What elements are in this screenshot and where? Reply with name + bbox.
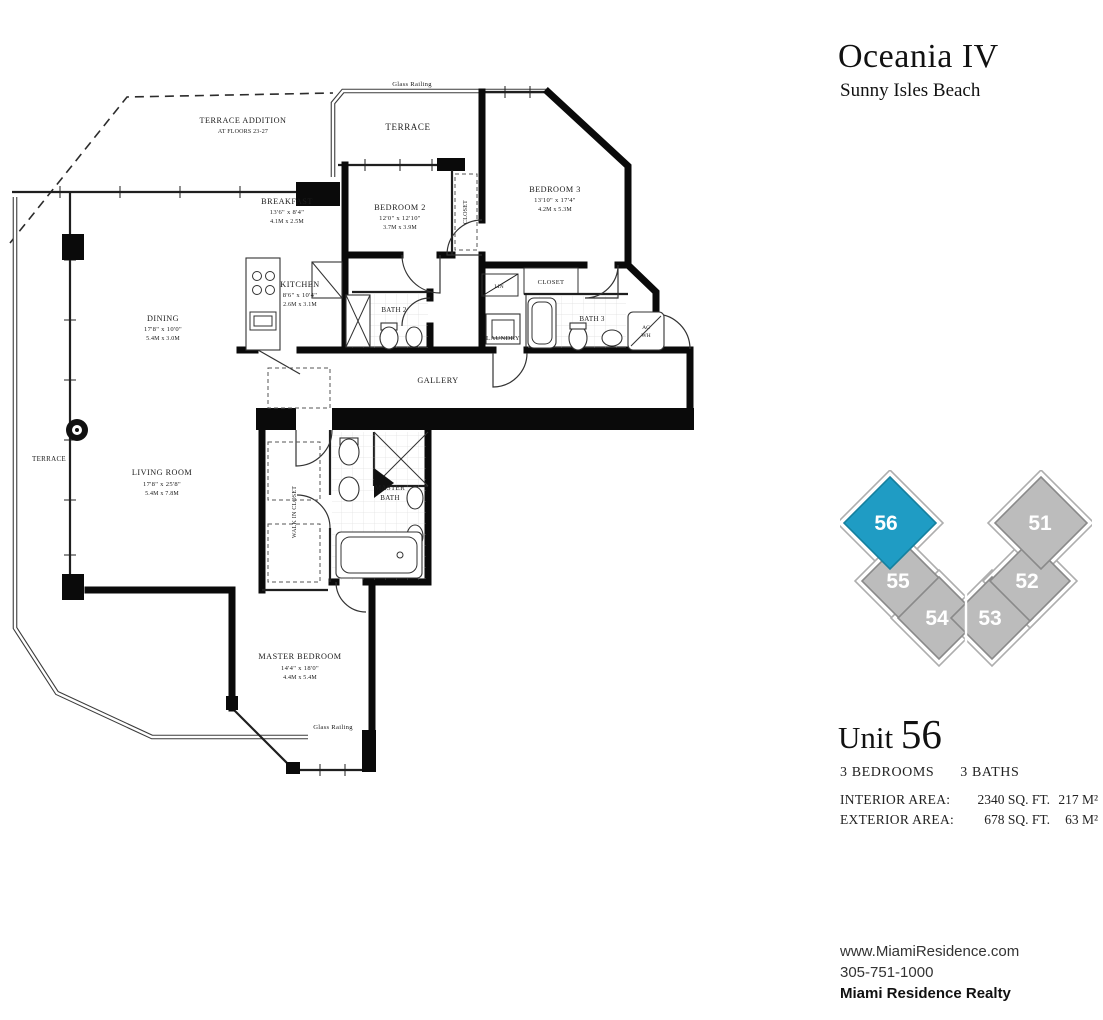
baths-count: 3 BATHS (960, 765, 1019, 780)
bedroom2-label: BEDROOM 2 12'0" x 12'10" 3.7M x 3.9M (374, 203, 426, 231)
svg-text:13'10" x 17'4": 13'10" x 17'4" (534, 197, 576, 204)
unit-word: Unit (838, 720, 901, 755)
svg-text:BEDROOM 2: BEDROOM 2 (374, 203, 426, 212)
svg-text:17'8" x 25'8": 17'8" x 25'8" (143, 481, 181, 488)
svg-text:KITCHEN: KITCHEN (280, 280, 319, 289)
svg-text:13'6" x 8'4": 13'6" x 8'4" (270, 209, 304, 216)
corner-block (437, 158, 465, 171)
svg-text:DINING: DINING (147, 314, 179, 323)
bath3-label: BATH 3 (579, 315, 605, 323)
terrace-addition-floors: AT FLOORS 23-27 (218, 129, 268, 135)
svg-text:WH: WH (641, 333, 650, 339)
building-title: Oceania IV (838, 38, 999, 76)
hall-closet-label: CLOSET (538, 279, 565, 286)
window-ticks (60, 86, 530, 776)
bed-bath-line: 3 BEDROOMS3 BATHS (840, 765, 1045, 781)
footer: www.MiamiResidence.com 305-751-1000 Miam… (840, 941, 1019, 1004)
svg-text:12'0" x 12'10": 12'0" x 12'10" (379, 215, 421, 222)
realty-name: Miami Residence Realty (840, 983, 1019, 1004)
corner-block (62, 234, 84, 260)
glass-railing-label-bottom: Glass Railing (313, 724, 353, 731)
kitchen-label: KITCHEN 8'6" x 10'4" 2.6M x 3.1M (280, 280, 319, 308)
wall-gallery-south (332, 408, 694, 430)
lin-label: LIN (494, 284, 503, 290)
svg-text:4.1M x 2.5M: 4.1M x 2.5M (270, 219, 304, 225)
unit-heading: Unit 56 (838, 710, 942, 758)
svg-text:56: 56 (874, 512, 897, 535)
building-keyplan: 56 55 54 53 52 51 (840, 470, 1092, 668)
corner-block (226, 696, 238, 710)
svg-text:4.4M x 5.4M: 4.4M x 5.4M (283, 675, 317, 681)
area-table: INTERIOR AREA: 2340 SQ. FT. 217 M² EXTER… (840, 790, 1098, 830)
master-bedroom-label: MASTER BEDROOM 14'4" x 18'0" 4.4M x 5.4M (258, 652, 341, 681)
gallery-label: GALLERY (417, 376, 458, 385)
svg-text:8'6" x 10'4": 8'6" x 10'4" (283, 292, 317, 299)
svg-text:MASTER BEDROOM: MASTER BEDROOM (258, 652, 341, 661)
breakfast-label: BREAKFAST 13'6" x 8'4" 4.1M x 2.5M (261, 197, 313, 225)
interior-area-m2: 217 M² (1050, 790, 1098, 810)
corner-block (286, 762, 300, 774)
svg-text:LIVING ROOM: LIVING ROOM (132, 468, 193, 477)
living-room-label: LIVING ROOM 17'8" x 25'8" 5.4M x 7.8M (132, 468, 193, 497)
svg-text:54: 54 (925, 607, 949, 630)
interior-area-row: INTERIOR AREA: 2340 SQ. FT. 217 M² (840, 790, 1098, 810)
dining-label: DINING 17'8" x 10'0" 5.4M x 3.0M (144, 314, 182, 342)
svg-text:BATH: BATH (380, 494, 399, 502)
svg-text:17'8" x 10'0": 17'8" x 10'0" (144, 326, 182, 333)
laundry-label: LAUNDRY (486, 335, 520, 342)
interior-area-sqft: 2340 SQ. FT. (958, 790, 1050, 810)
ac-wh-closet (628, 312, 664, 350)
website-link[interactable]: www.MiamiResidence.com (840, 941, 1019, 962)
svg-text:55: 55 (886, 570, 910, 593)
terrace-label-left: TERRACE (32, 455, 66, 463)
floorplan: TERRACE ADDITION AT FLOORS 23-27 Glass R… (0, 0, 710, 870)
bedroom3-label: BEDROOM 3 13'10" x 17'4" 4.2M x 5.3M (529, 185, 581, 213)
terrace-addition-label: TERRACE ADDITION (200, 116, 287, 125)
building-subtitle: Sunny Isles Beach (840, 80, 980, 102)
terrace-label-top: TERRACE (385, 122, 430, 132)
unit-number: 56 (901, 711, 942, 757)
exterior-area-row: EXTERIOR AREA: 678 SQ. FT. 63 M² (840, 810, 1098, 830)
corner-block (362, 730, 376, 772)
corner-block (62, 574, 84, 600)
bedrooms-count: 3 BEDROOMS (840, 765, 934, 780)
svg-text:MASTER: MASTER (375, 484, 405, 492)
phone-number: 305-751-1000 (840, 962, 1019, 983)
svg-text:14'4" x 18'0": 14'4" x 18'0" (281, 665, 319, 672)
svg-text:BEDROOM 3: BEDROOM 3 (529, 185, 581, 194)
svg-text:53: 53 (978, 607, 1001, 630)
svg-text:51: 51 (1028, 512, 1052, 535)
svg-text:5.4M x 3.0M: 5.4M x 3.0M (146, 336, 180, 342)
bath2-label: BATH 2 (381, 306, 407, 314)
svg-text:4.2M x 5.3M: 4.2M x 5.3M (538, 207, 572, 213)
exterior-area-label: EXTERIOR AREA: (840, 810, 958, 830)
flyer-page: TERRACE ADDITION AT FLOORS 23-27 Glass R… (0, 0, 1103, 1020)
exterior-area-sqft: 678 SQ. FT. (958, 810, 1050, 830)
exterior-area-m2: 63 M² (1050, 810, 1098, 830)
bed2-closet-label: CLOSET (463, 200, 469, 224)
terrace-column (66, 419, 88, 441)
glass-railing-label-top: Glass Railing (392, 81, 432, 88)
svg-text:5.4M x 7.8M: 5.4M x 7.8M (145, 491, 179, 497)
svg-text:2.6M x 3.1M: 2.6M x 3.1M (283, 302, 317, 308)
interior-area-label: INTERIOR AREA: (840, 790, 958, 810)
svg-text:52: 52 (1015, 570, 1038, 593)
walkin-closet-label: WALK IN CLOSET (292, 486, 298, 538)
svg-text:BREAKFAST: BREAKFAST (261, 197, 313, 206)
svg-text:AC: AC (642, 325, 650, 331)
svg-text:3.7M x 3.9M: 3.7M x 3.9M (383, 225, 417, 231)
